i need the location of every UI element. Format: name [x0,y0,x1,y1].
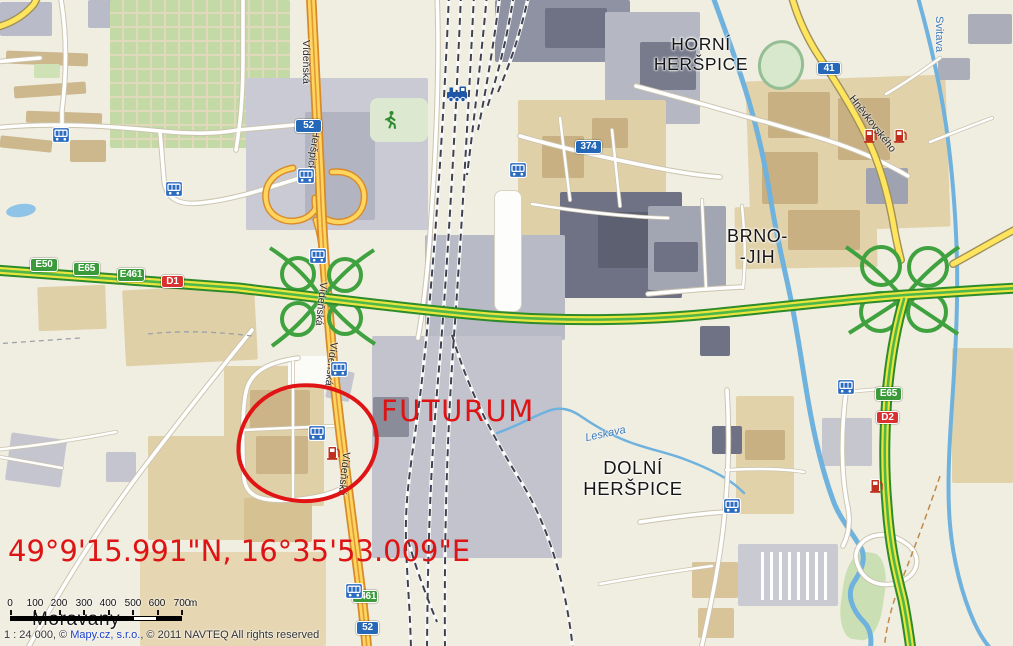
tram-stop-icon[interactable] [52,127,70,143]
fuel-station-icon[interactable] [870,477,883,493]
attribution-scale: 1 : 24 000, © [4,629,70,641]
scale-tick-label: 0 [0,598,23,609]
annotation-poi-label: FUTURUM [381,394,535,428]
scale-tick-label: 400 [95,598,121,609]
tram-stop-icon[interactable] [165,181,183,197]
tram-stop-icon[interactable] [309,248,327,264]
fuel-station-icon[interactable] [864,127,877,143]
road-shield-41: 41 [817,62,841,75]
scale-bar-segment [10,616,133,621]
tram-stop-icon[interactable] [509,162,527,178]
road-shield-52: 52 [295,119,322,133]
river-svitava [917,0,992,646]
tram-stop-icon[interactable] [297,168,315,184]
place-label-dolni-herspice: DOLNÍ HERŠPICE [572,457,694,499]
scale-tick-label: 300 [71,598,97,609]
road-shield-e50: E50 [30,258,58,272]
scale-tick-label: 600 [144,598,170,609]
attribution: 1 : 24 000, © Mapy.cz, s.r.o., © 2011 NA… [4,629,319,641]
scale-unit-label: m [186,598,200,609]
road-shield-e461: E461 [117,268,145,282]
scale-tick-label: 100 [22,598,48,609]
train-station-icon[interactable] [446,84,468,103]
map-canvas[interactable]: E50 E65 E461 D1 52 374 41 E65 D2 E461 52… [0,0,1013,646]
place-label-horni-herspice: HORNÍ HERŠPICE [640,34,762,74]
annotation-coordinates: 49°9'15.991"N, 16°35'53.009"E [8,534,470,568]
scale-bar-segment [157,616,182,621]
tram-stop-icon[interactable] [837,379,855,395]
road-shield-d1: D1 [161,275,184,288]
road-shield-d2: D2 [876,411,899,424]
scale-tick-label: 500 [120,598,146,609]
road-shield-52: 52 [356,621,379,635]
attribution-copyright: , © 2011 NAVTEQ All rights reserved [140,629,319,641]
fuel-station-icon[interactable] [894,127,907,143]
road-shield-e65: E65 [73,262,100,276]
tram-stop-icon[interactable] [345,583,363,599]
river-label-svitava: Svitava [933,16,945,52]
road-shield-e65: E65 [875,387,902,401]
scale-bar-segment [133,616,157,621]
runner-icon[interactable] [382,110,398,130]
attribution-link[interactable]: Mapy.cz, s.r.o. [70,629,140,641]
tram-stop-icon[interactable] [330,361,348,377]
street-label-videnska: Vídeňská [300,40,312,84]
tram-stop-icon[interactable] [723,498,741,514]
place-label-brno-jih: BRNO- -JIH [715,226,800,268]
scale-tick-label: 200 [46,598,72,609]
road-shield-374: 374 [575,140,602,154]
